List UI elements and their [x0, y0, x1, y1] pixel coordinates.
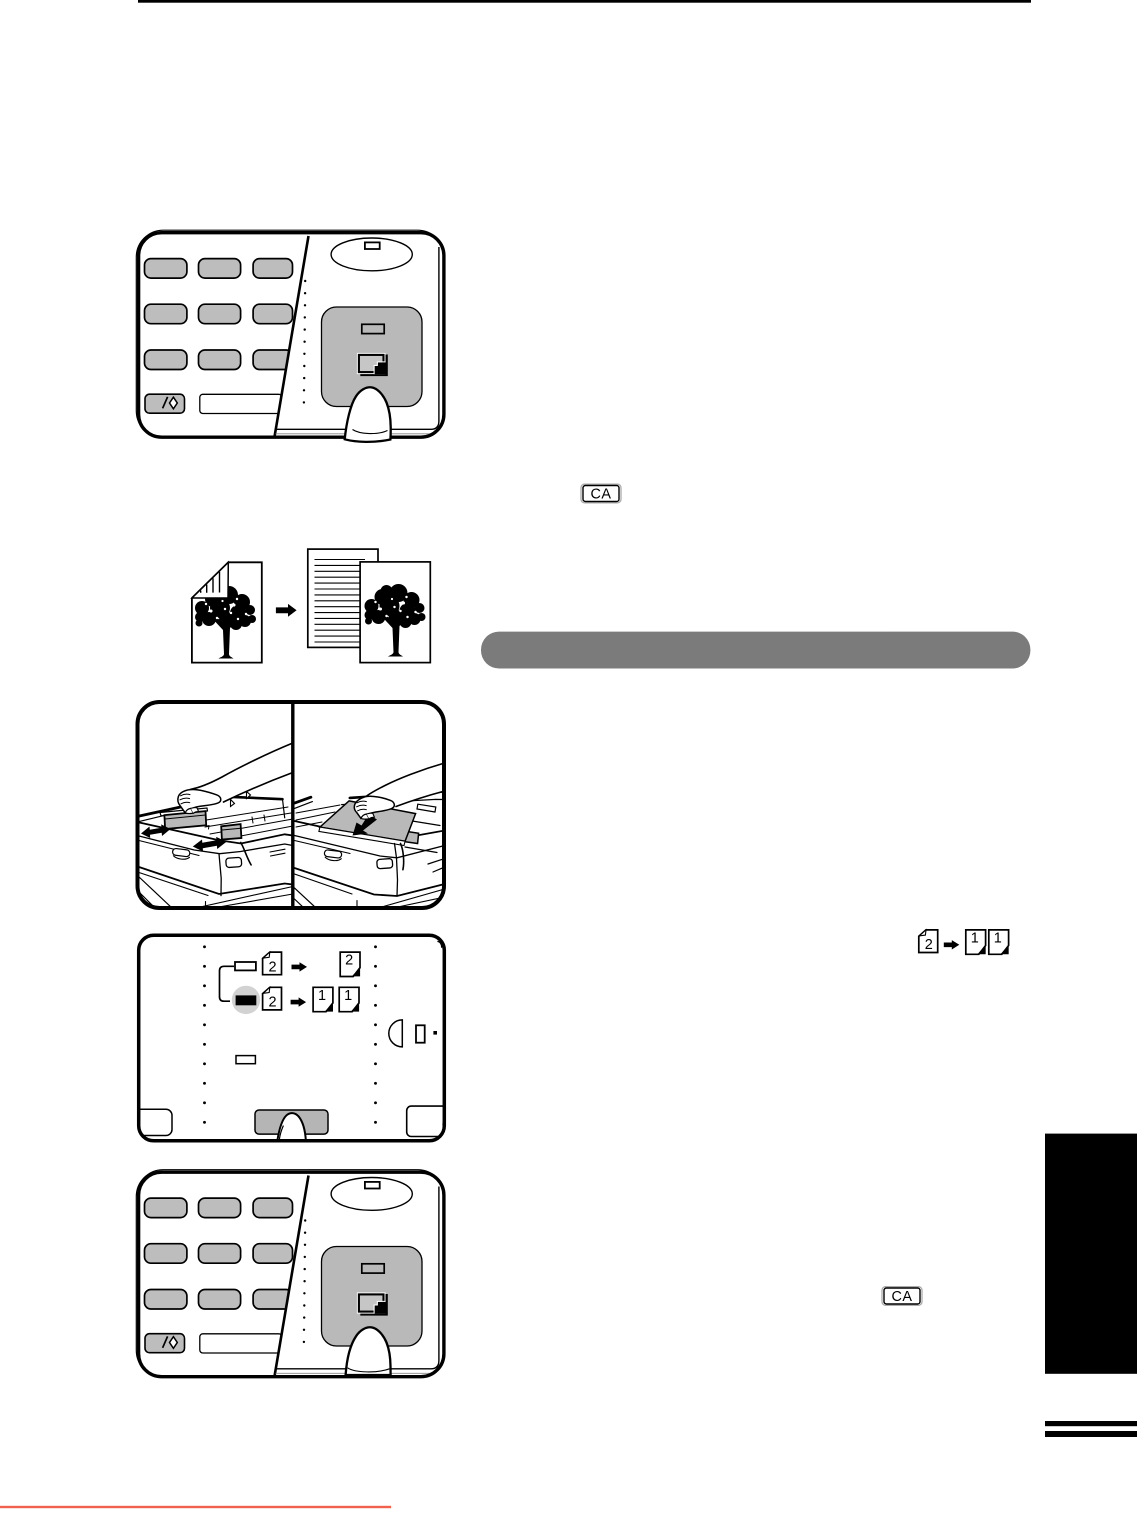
- svg-text:1: 1: [318, 988, 326, 1004]
- svg-text:2: 2: [345, 953, 353, 969]
- svg-text:1: 1: [344, 988, 352, 1004]
- svg-text:1: 1: [971, 930, 979, 946]
- svg-text:1: 1: [994, 930, 1002, 946]
